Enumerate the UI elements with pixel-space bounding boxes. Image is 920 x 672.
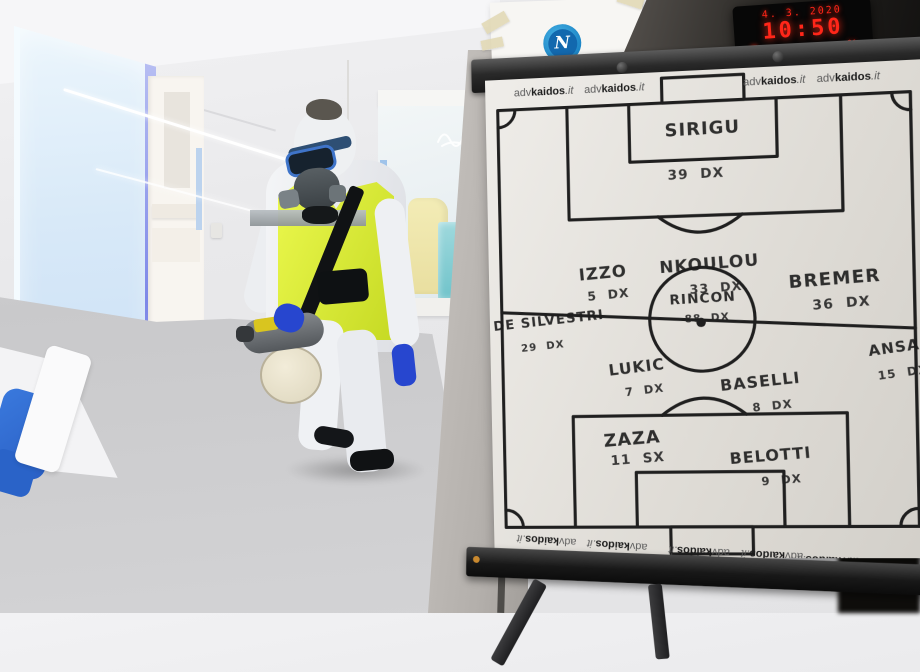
counter	[152, 204, 200, 218]
player-name: RINCON	[669, 290, 736, 309]
masking-tape	[617, 0, 645, 9]
player-number: 15 DX/SX	[877, 358, 920, 383]
player-name: LUKIC	[608, 355, 666, 380]
hair	[306, 99, 342, 120]
player-number: 5 DX	[587, 286, 630, 304]
player-name: NKOULOU	[659, 250, 760, 277]
mirror	[164, 92, 190, 188]
player-number: 36 DX	[812, 294, 871, 314]
player-name: ZAZA	[603, 427, 662, 452]
player-name: SIRIGU	[664, 117, 740, 142]
advkaidos-watermark: advkaidos.it advkaidos.it	[796, 553, 920, 558]
respirator-filter-right	[329, 185, 346, 202]
player-annotations: SIRIGU39 DXIZZO5 DXNKOULOU33 DXBREMER36 …	[489, 108, 920, 490]
player-name: BELOTTI	[729, 443, 812, 468]
tray-screw	[473, 556, 480, 563]
mask-valve	[302, 206, 338, 224]
player-name: BREMER	[788, 266, 882, 294]
blue-glove-right	[391, 343, 417, 387]
tactics-sheet: advkaidos.it advkaidos.itadvkaidos.it ad…	[485, 59, 920, 558]
player-number: 29 DX	[521, 338, 566, 355]
respirator-filter-left	[278, 188, 301, 209]
player-number: 8 DX	[752, 396, 794, 414]
player-name: IZZO	[578, 261, 628, 285]
waist-pouch	[317, 268, 370, 305]
player-number: 9 DX	[761, 471, 803, 488]
fogger-tank	[260, 346, 322, 404]
easel-leg	[648, 584, 670, 660]
clamp-knob	[772, 51, 783, 63]
easel-leg	[490, 578, 547, 666]
sanitation-worker	[250, 98, 435, 508]
flipchart-easel: advkaidos.it advkaidos.itadvkaidos.it ad…	[475, 21, 920, 659]
worker-shoe	[349, 448, 395, 472]
advkaidos-watermark: advkaidos.it advkaidos.it	[514, 81, 646, 99]
player-number: 7 DX	[624, 381, 665, 400]
counter-base	[152, 228, 200, 262]
tactics-pitch: advkaidos.it advkaidos.itadvkaidos.it ad…	[485, 59, 920, 558]
glass-reflection	[196, 148, 202, 230]
doorway-to-washroom	[148, 76, 204, 328]
player-number: 88 DX	[684, 311, 730, 326]
fogger-nozzle	[236, 326, 254, 342]
clamp-knob	[617, 62, 628, 73]
player-name: BASELLI	[719, 368, 801, 394]
light-switch	[211, 223, 222, 238]
player-name: ANSALDI	[867, 332, 920, 360]
player-number: 11 SX	[610, 450, 666, 469]
advkaidos-watermark: advkaidos.it advkaidos.it	[743, 70, 881, 89]
player-number: 39 DX	[667, 166, 724, 184]
